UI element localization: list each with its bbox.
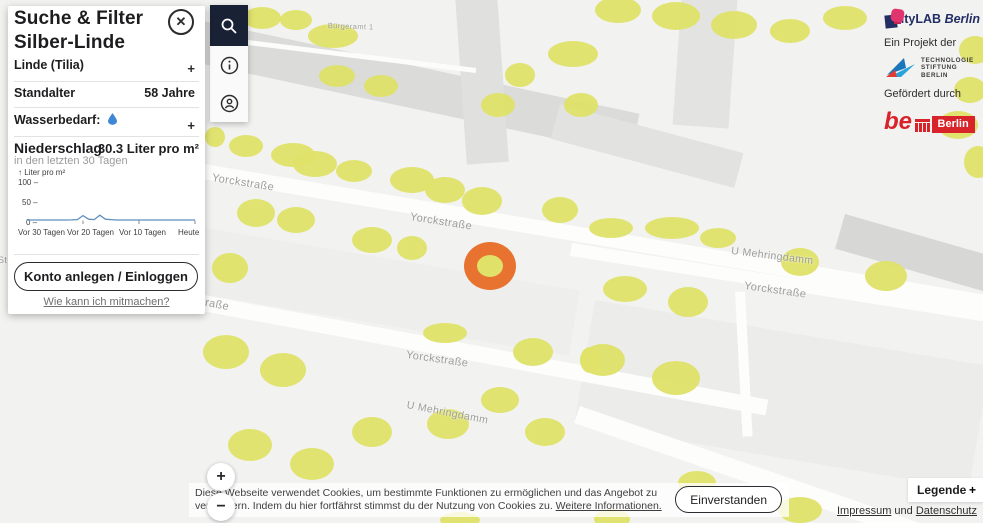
participate-link[interactable]: Wie kann ich mitmachen?	[8, 296, 205, 308]
cookie-text-line2: von Cookies zu.	[478, 500, 556, 512]
tsb-logo-icon	[884, 55, 916, 81]
expand-wasserbedarf-icon[interactable]: +	[187, 118, 195, 133]
rain-chart: ↑ Liter pro m² 100 – 50 – 0 – Vor 30 Tag…	[12, 166, 202, 242]
datenschutz-link[interactable]: Datenschutz	[916, 505, 977, 517]
cookie-info-link[interactable]: Weitere Informationen.	[556, 500, 662, 512]
citylab-logo: CityLAB Berlin	[884, 8, 980, 30]
tree-marker[interactable]	[770, 19, 810, 43]
legend-label: Legende	[917, 483, 966, 497]
divider	[14, 254, 199, 255]
tree-marker[interactable]	[228, 429, 272, 461]
standalter-value: 58 Jahre	[144, 86, 195, 100]
tree-marker[interactable]	[260, 353, 306, 387]
search-button[interactable]	[210, 5, 248, 46]
citylab-logo-text: CityLAB Berlin	[892, 12, 980, 26]
tree-marker[interactable]	[964, 146, 983, 178]
tree-marker[interactable]	[229, 135, 263, 157]
tree-marker[interactable]	[652, 2, 700, 30]
map-block	[574, 300, 983, 489]
info-icon	[220, 56, 239, 75]
divider	[14, 81, 199, 82]
divider	[14, 136, 199, 137]
citylab-logo-icon	[884, 8, 888, 30]
tree-marker[interactable]	[668, 287, 708, 317]
funded-text: Gefördert durch	[884, 88, 980, 100]
footer-links: Impressum und Datenschutz	[837, 505, 977, 517]
x-tick-heute: Heute	[178, 228, 199, 237]
chart-total: 30.3 Liter pro m²	[98, 141, 199, 156]
tree-marker[interactable]	[352, 417, 392, 447]
panel-title: Suche & Filter	[14, 8, 143, 30]
standalter-label: Standalter	[14, 86, 75, 100]
cookie-banner: Diese Webseite verwendet Cookies, um bes…	[189, 483, 789, 517]
tree-marker[interactable]	[290, 448, 334, 480]
tree-marker[interactable]	[513, 338, 553, 366]
tree-marker[interactable]	[645, 217, 699, 239]
street-label: St	[0, 255, 7, 265]
tree-marker[interactable]	[548, 41, 598, 67]
zoom-in-button[interactable]: +	[207, 463, 235, 491]
map-block	[455, 0, 509, 165]
x-tick-10: Vor 10 Tagen	[119, 228, 166, 237]
tree-marker[interactable]	[277, 207, 315, 233]
info-button[interactable]	[210, 46, 248, 84]
rain-line	[27, 215, 195, 220]
tool-column	[210, 5, 248, 122]
tree-marker[interactable]	[205, 127, 225, 147]
tree-name: Silber-Linde	[14, 32, 125, 54]
close-icon[interactable]: ✕	[168, 9, 194, 35]
tree-marker[interactable]	[243, 7, 281, 29]
tree-marker[interactable]	[212, 253, 248, 283]
tree-marker[interactable]	[525, 418, 565, 446]
tree-marker[interactable]	[564, 93, 598, 117]
wasserbedarf-label: Wasserbedarf:	[14, 113, 117, 127]
tree-marker[interactable]	[425, 177, 465, 203]
be-berlin-logo: be Berlin	[884, 107, 980, 133]
water-drop-icon	[108, 113, 117, 125]
profile-button[interactable]	[210, 84, 248, 122]
tree-marker[interactable]	[542, 197, 578, 223]
impressum-link[interactable]: Impressum	[837, 505, 891, 517]
divider	[14, 107, 199, 108]
legend-toggle[interactable]: Legende +	[908, 478, 983, 502]
search-filter-panel: Suche & Filter ✕ Silber-Linde Linde (Til…	[8, 6, 205, 314]
tree-marker[interactable]	[481, 387, 519, 413]
tree-marker[interactable]	[293, 151, 337, 177]
tree-marker[interactable]	[481, 93, 515, 117]
selected-tree-center	[477, 255, 503, 277]
brandenburg-gate-icon	[915, 119, 930, 133]
tree-marker[interactable]	[462, 187, 502, 215]
tree-marker[interactable]	[237, 199, 275, 227]
tree-marker[interactable]	[364, 75, 398, 97]
tree-marker[interactable]	[865, 261, 907, 291]
tree-marker[interactable]	[603, 276, 647, 302]
tree-marker[interactable]	[589, 218, 633, 238]
tsb-logo: TECHNOLOGIE STIFTUNG BERLIN	[884, 55, 980, 81]
footer-und: und	[891, 505, 915, 517]
tree-marker[interactable]	[823, 6, 867, 30]
search-icon	[220, 17, 238, 35]
tree-marker[interactable]	[700, 228, 736, 248]
tree-marker[interactable]	[336, 160, 372, 182]
expand-species-icon[interactable]: +	[187, 61, 195, 76]
cookie-accept-button[interactable]: Einverstanden	[675, 486, 782, 513]
tree-marker[interactable]	[505, 63, 535, 87]
tree-marker[interactable]	[423, 323, 467, 343]
tree-marker[interactable]	[595, 0, 641, 23]
rain-chart-svg	[12, 166, 202, 228]
legend-expand-icon: +	[969, 483, 976, 497]
be-berlin-box: Berlin	[932, 116, 975, 133]
tree-marker[interactable]	[319, 65, 355, 87]
street-label: Bürgeramt 1	[328, 21, 374, 32]
tree-marker[interactable]	[352, 227, 392, 253]
zoom-out-button[interactable]: −	[207, 493, 235, 521]
tree-marker[interactable]	[280, 10, 312, 30]
tree-marker[interactable]	[203, 335, 249, 369]
x-tick-30: Vor 30 Tagen	[18, 228, 65, 237]
project-text: Ein Projekt der	[884, 37, 980, 49]
tree-marker[interactable]	[580, 347, 600, 373]
tsb-logo-text: TECHNOLOGIE STIFTUNG BERLIN	[921, 57, 974, 80]
be-berlin-script: be	[884, 111, 912, 133]
tree-marker[interactable]	[652, 361, 700, 395]
tree-marker[interactable]	[397, 236, 427, 260]
x-tick-20: Vor 20 Tagen	[67, 228, 114, 237]
branding-block: CityLAB Berlin Ein Projekt der TECHNOLOG…	[884, 8, 980, 133]
tree-marker[interactable]	[711, 11, 757, 39]
species-label: Linde (Tilia)	[14, 58, 84, 72]
app-window: Bürgeramt 1YorckstraßeYorckstraßetraßeYo…	[0, 0, 983, 523]
login-button[interactable]: Konto anlegen / Einloggen	[14, 262, 198, 291]
chart-title: Niederschlag	[14, 140, 102, 156]
profile-icon	[220, 94, 239, 113]
